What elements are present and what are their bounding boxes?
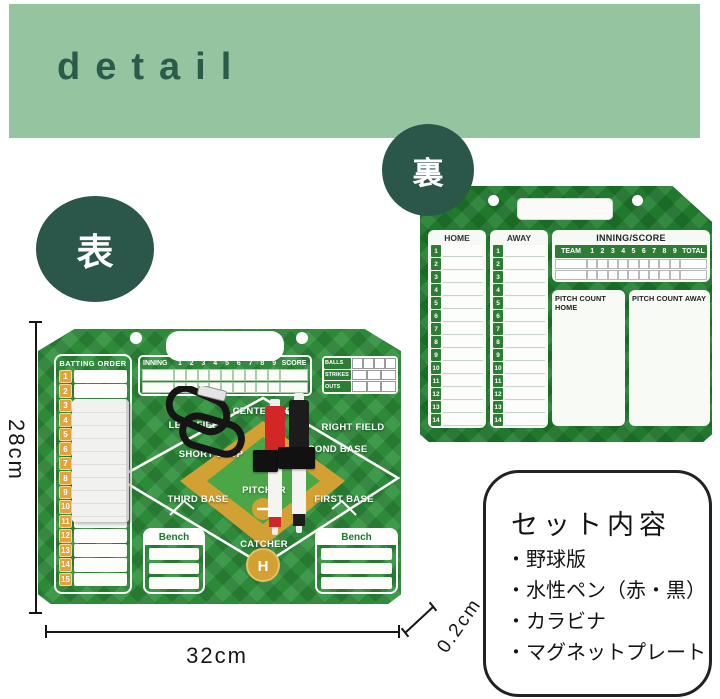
count-cells	[352, 358, 396, 369]
score-inning-number: 8	[659, 245, 669, 258]
score-cell	[628, 259, 638, 269]
roster-row-field	[505, 297, 545, 309]
score-cell	[649, 270, 659, 280]
batting-row-number: 9	[59, 486, 72, 499]
home-roster-title: HOME	[431, 232, 483, 245]
score-header-label: SCORE	[280, 358, 308, 369]
home-plate-icon: H	[258, 558, 269, 575]
dimension-cap	[29, 321, 42, 323]
roster-row-number: 5	[493, 297, 503, 309]
magnet-clip	[278, 447, 315, 469]
inning-number: 6	[233, 358, 245, 369]
width-dimension-label: 32cm	[157, 643, 277, 669]
roster-row-number: 13	[493, 401, 503, 413]
label-catcher: CATCHER	[218, 539, 310, 550]
set-contents-item: ・カラビナ	[506, 607, 701, 638]
back-side-badge: 裏	[382, 124, 474, 216]
roster-row-field	[505, 258, 545, 270]
score-inning-number: 5	[628, 245, 638, 258]
pen-cap-tip	[294, 393, 304, 400]
roster-row: 3	[493, 271, 545, 283]
batting-row-number: 7	[59, 457, 72, 470]
roster-row: 7	[493, 323, 545, 335]
roster-row: 11	[493, 375, 545, 387]
count-panel: BALLSSTRIKESOUTS	[322, 356, 398, 394]
roster-row-number: 8	[493, 336, 503, 348]
roster-row-number: 9	[493, 349, 503, 361]
set-contents-list: ・野球版・水性ペン（赤・黒）・カラビナ・マグネットプレート	[506, 545, 701, 669]
roster-row: 3	[431, 271, 483, 283]
roster-row: 1	[431, 245, 483, 257]
pitch-count-away-panel: PITCH COUNT AWAY	[629, 290, 710, 426]
width-dimension-line	[46, 631, 400, 633]
set-contents-item: ・水性ペン（赤・黒）	[506, 576, 701, 607]
count-cells	[352, 381, 396, 392]
roster-row-number: 12	[493, 388, 503, 400]
roster-row-number: 10	[431, 362, 441, 374]
inning-number: 3	[198, 358, 210, 369]
inning-cell	[186, 369, 198, 381]
score-inning-number: 9	[670, 245, 680, 258]
batting-row-number: 8	[59, 471, 72, 484]
roster-row-number: 6	[493, 310, 503, 322]
roster-row: 14	[431, 414, 483, 426]
score-cell	[608, 270, 618, 280]
roster-row: 9	[493, 349, 545, 361]
front-side-badge-label: 表	[77, 222, 114, 276]
batting-order-title: BATTING ORDER	[59, 358, 127, 370]
batting-row-number: 12	[59, 529, 72, 542]
count-cell	[363, 358, 374, 369]
home-roster-panel: HOME 1234567891011121314	[428, 230, 486, 428]
score-cell	[618, 259, 628, 269]
carabiner-icon	[156, 386, 256, 466]
batting-row-number: 3	[59, 399, 72, 412]
pen-grip	[269, 517, 281, 527]
away-rows: 1234567891011121314	[493, 245, 545, 426]
count-cell	[381, 370, 396, 381]
front-board: BATTING ORDER 123456789101112131415 INNI…	[38, 329, 401, 604]
roster-row-number: 5	[431, 297, 441, 309]
away-roster-panel: AWAY 1234567891011121314	[490, 230, 548, 428]
magnet-clip	[253, 450, 278, 472]
roster-row-field	[505, 310, 545, 322]
count-row-label: STRIKES	[324, 370, 351, 381]
roster-row: 8	[431, 336, 483, 348]
score-inning-number: 4	[618, 245, 628, 258]
height-dimension-line	[35, 322, 37, 614]
front-side-badge: 表	[36, 196, 154, 302]
roster-row: 1	[493, 245, 545, 257]
away-roster-title: AWAY	[493, 232, 545, 245]
bench-box-right: Bench	[315, 528, 398, 594]
score-inning-number: 3	[608, 245, 618, 258]
roster-row-field	[505, 362, 545, 374]
inning-cell	[142, 369, 174, 381]
batting-row: 1	[59, 370, 127, 383]
roster-row: 5	[493, 297, 545, 309]
roster-row-number: 12	[431, 388, 441, 400]
inning-cell	[209, 369, 221, 381]
batting-row-number: 4	[59, 413, 72, 426]
hole-icon	[130, 332, 142, 344]
roster-row-number: 10	[493, 362, 503, 374]
inning-cell	[245, 369, 257, 381]
hole-icon	[296, 332, 308, 344]
count-cell	[352, 370, 367, 381]
pen-nib	[272, 527, 278, 535]
count-cell	[352, 381, 367, 392]
roster-row: 4	[431, 284, 483, 296]
score-cell	[680, 259, 707, 269]
hole-icon	[632, 195, 643, 206]
bench-slot	[321, 577, 392, 589]
roster-row-number: 1	[493, 245, 503, 257]
inning-number: 9	[268, 358, 280, 369]
roster-row-field	[505, 336, 545, 348]
dimension-cap	[45, 625, 47, 638]
set-contents-item: ・野球版	[506, 545, 701, 576]
back-board: HOME 1234567891011121314 AWAY 1234567891…	[420, 186, 712, 442]
inning-cell	[256, 369, 268, 381]
roster-row-field	[505, 349, 545, 361]
score-cell	[555, 259, 587, 269]
roster-row-field	[443, 362, 483, 374]
score-cell	[659, 259, 669, 269]
score-header-row: TEAM123456789TOTAL	[555, 245, 707, 258]
score-inning-number: 6	[639, 245, 649, 258]
roster-row-number: 1	[431, 245, 441, 257]
inning-header-label: INNING	[142, 358, 174, 369]
roster-row: 10	[431, 362, 483, 374]
roster-row-field	[505, 284, 545, 296]
roster-row-field	[505, 323, 545, 335]
roster-row: 9	[431, 349, 483, 361]
batting-row-number: 1	[59, 370, 72, 383]
roster-row: 6	[493, 310, 545, 322]
roster-row: 7	[431, 323, 483, 335]
inning-score-title: INNING/SCORE	[555, 232, 707, 245]
roster-row-number: 2	[431, 258, 441, 270]
thickness-dimension-line	[400, 598, 444, 642]
page: detail 表 裏 BATTING ORDER 123456789101112…	[0, 0, 720, 699]
count-cell	[374, 358, 385, 369]
inning-body-row	[142, 369, 308, 381]
bench-slot	[321, 563, 392, 575]
roster-row: 5	[431, 297, 483, 309]
score-body-row	[555, 270, 707, 280]
roster-row-number: 3	[431, 271, 441, 283]
count-row: BALLS	[324, 358, 396, 369]
roster-row-field	[443, 284, 483, 296]
roster-row: 12	[493, 388, 545, 400]
batting-row-number: 11	[59, 515, 72, 528]
score-inning-number: 7	[649, 245, 659, 258]
count-cell	[352, 358, 363, 369]
roster-row-field	[505, 414, 545, 426]
pen-grip	[293, 514, 305, 526]
dimension-cap	[29, 612, 42, 614]
roster-row-number: 13	[431, 401, 441, 413]
inning-number: 7	[245, 358, 257, 369]
inning-cell	[174, 369, 186, 381]
inning-cell	[221, 369, 233, 381]
roster-row-number: 4	[493, 284, 503, 296]
roster-row-number: 7	[431, 323, 441, 335]
batting-row-number: 10	[59, 500, 72, 513]
pitch-count-away-label: PITCH COUNT AWAY	[632, 294, 707, 303]
score-cell	[670, 259, 680, 269]
score-cell	[639, 270, 649, 280]
inning-score-panel: INNING/SCORE TEAM123456789TOTAL	[552, 230, 710, 282]
bench-slot	[149, 577, 199, 589]
page-title: detail	[57, 46, 246, 89]
roster-row-number: 14	[431, 414, 441, 426]
count-row-label: OUTS	[324, 381, 351, 392]
roster-row-field	[443, 401, 483, 413]
roster-row-field	[443, 297, 483, 309]
batting-row-number: 2	[59, 384, 72, 397]
roster-row: 13	[431, 401, 483, 413]
pen-nib	[296, 526, 302, 533]
roster-row-number: 11	[431, 375, 441, 387]
score-cell	[670, 270, 680, 280]
roster-row-number: 4	[431, 284, 441, 296]
roster-row: 14	[493, 414, 545, 426]
set-contents-title: セット内容	[511, 503, 671, 542]
score-cell	[680, 270, 707, 280]
count-cell	[367, 370, 382, 381]
roster-row-number: 6	[431, 310, 441, 322]
roster-row: 11	[431, 375, 483, 387]
inning-number: 4	[209, 358, 221, 369]
pen-cap-tip	[270, 399, 280, 406]
roster-row-number: 2	[493, 258, 503, 270]
inning-cell	[198, 369, 210, 381]
batting-row-number: 6	[59, 442, 72, 455]
roster-row: 2	[431, 258, 483, 270]
bench-label: Bench	[145, 530, 203, 545]
score-cell	[618, 270, 628, 280]
inning-cell	[256, 382, 268, 394]
score-cell	[555, 270, 587, 280]
magnet-plate-stack	[72, 400, 129, 522]
count-cell	[385, 358, 396, 369]
roster-row-field	[505, 245, 545, 257]
roster-row-field	[443, 375, 483, 387]
roster-row-field	[443, 310, 483, 322]
roster-row-field	[443, 245, 483, 257]
roster-row-number: 8	[431, 336, 441, 348]
inning-cell	[268, 382, 280, 394]
roster-row: 12	[431, 388, 483, 400]
set-contents-box: セット内容 ・野球版・水性ペン（赤・黒）・カラビナ・マグネットプレート	[483, 470, 712, 697]
label-first-base: FIRST BASE	[298, 494, 390, 505]
batting-row-number: 14	[59, 558, 72, 571]
bench-label: Bench	[317, 530, 396, 545]
roster-row-field	[443, 323, 483, 335]
score-cell	[587, 259, 597, 269]
home-rows: 1234567891011121314	[431, 245, 483, 426]
batting-row-number: 13	[59, 544, 72, 557]
inning-number: 8	[256, 358, 268, 369]
inning-header-row: INNING123456789SCORE	[142, 358, 308, 369]
count-cells	[352, 370, 396, 381]
back-side-badge-label: 裏	[413, 148, 444, 193]
score-body-row	[555, 259, 707, 269]
roster-row: 6	[431, 310, 483, 322]
roster-row-field	[505, 388, 545, 400]
count-row-label: BALLS	[324, 358, 351, 369]
roster-row-field	[443, 258, 483, 270]
roster-row-number: 7	[493, 323, 503, 335]
roster-row-field	[443, 271, 483, 283]
count-row: STRIKES	[324, 370, 396, 381]
height-dimension-label: 28cm	[3, 419, 29, 479]
score-inning-number: 1	[587, 245, 597, 258]
roster-row-field	[443, 414, 483, 426]
batting-row-number: 15	[59, 573, 72, 586]
inning-number: 5	[221, 358, 233, 369]
roster-row: 4	[493, 284, 545, 296]
roster-row: 10	[493, 362, 545, 374]
bench-box-left: Bench	[143, 528, 205, 594]
score-cell	[597, 270, 607, 280]
score-cell	[608, 259, 618, 269]
roster-row: 8	[493, 336, 545, 348]
name-plate	[517, 198, 613, 220]
score-body	[555, 259, 707, 280]
bench-slot	[149, 548, 199, 560]
pitch-count-home-panel: PITCH COUNT HOME	[552, 290, 625, 426]
detail-banner: detail	[9, 4, 700, 138]
count-row: OUTS	[324, 381, 396, 392]
score-cell	[597, 259, 607, 269]
roster-row-field	[505, 375, 545, 387]
inning-cell	[268, 369, 280, 381]
roster-row-number: 14	[493, 414, 503, 426]
inning-number: 2	[186, 358, 198, 369]
batting-row-field	[74, 370, 127, 383]
roster-row: 13	[493, 401, 545, 413]
pitch-count-home-label: PITCH COUNT HOME	[555, 294, 622, 312]
inning-cell	[280, 382, 308, 394]
total-header-label: TOTAL	[680, 245, 707, 258]
count-cell	[381, 381, 396, 392]
bench-slot	[149, 563, 199, 575]
roster-row-number: 9	[431, 349, 441, 361]
hole-icon	[488, 195, 499, 206]
score-cell	[649, 259, 659, 269]
count-cell	[367, 381, 382, 392]
roster-row-number: 11	[493, 375, 503, 387]
roster-row-field	[443, 349, 483, 361]
label-right-field: RIGHT FIELD	[307, 422, 399, 433]
score-cell	[628, 270, 638, 280]
roster-row-number: 3	[493, 271, 503, 283]
roster-row: 2	[493, 258, 545, 270]
score-cell	[639, 259, 649, 269]
set-contents-item: ・マグネットプレート	[506, 638, 701, 669]
score-cell	[659, 270, 669, 280]
inning-number: 1	[174, 358, 186, 369]
bench-slot	[321, 548, 392, 560]
score-cell	[587, 270, 597, 280]
inning-cell	[280, 369, 308, 381]
inning-cell	[233, 369, 245, 381]
score-inning-number: 2	[597, 245, 607, 258]
batting-row-number: 5	[59, 428, 72, 441]
roster-row-field	[443, 336, 483, 348]
roster-row-field	[505, 401, 545, 413]
roster-row-field	[505, 271, 545, 283]
team-header-label: TEAM	[555, 245, 587, 258]
roster-row-field	[443, 388, 483, 400]
